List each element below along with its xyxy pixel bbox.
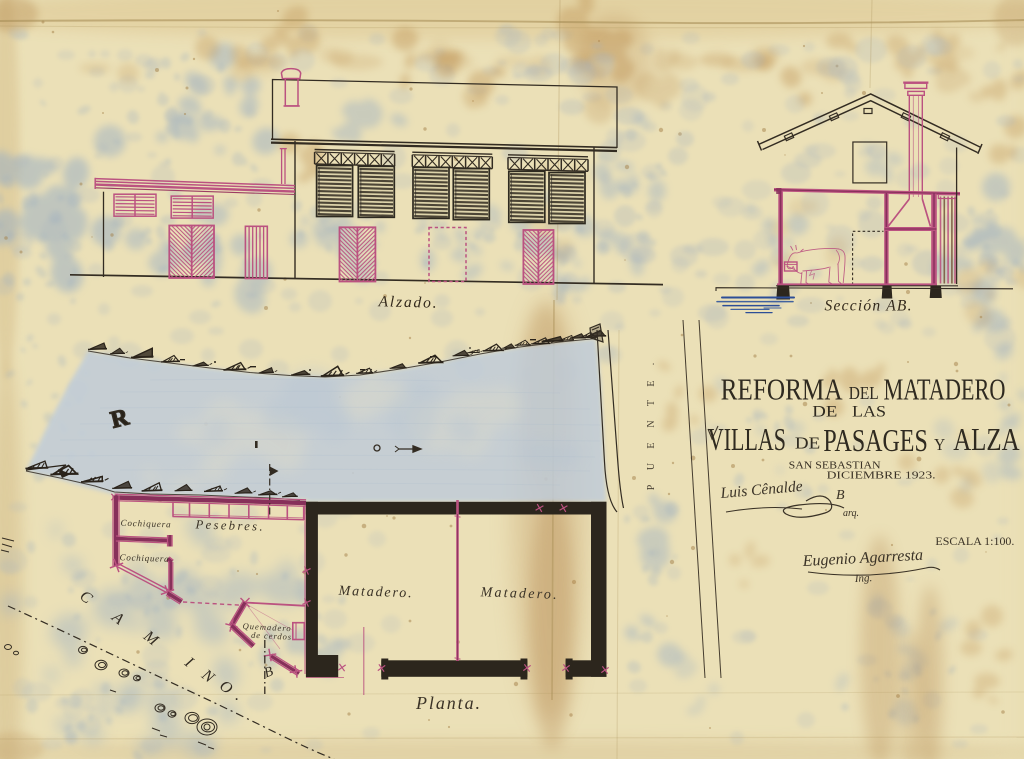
svg-text:.: . bbox=[646, 363, 657, 366]
svg-text:ESCALA 1:100.: ESCALA 1:100. bbox=[935, 536, 1014, 548]
svg-text:P: P bbox=[646, 484, 657, 490]
svg-text:DICIEMBRE 1923.: DICIEMBRE 1923. bbox=[827, 470, 936, 482]
svg-text:arq.: arq. bbox=[843, 508, 859, 519]
svg-text:REFORMA: REFORMA bbox=[721, 372, 843, 407]
svg-text:Sección AB.: Sección AB. bbox=[825, 298, 912, 315]
svg-text:LAS: LAS bbox=[852, 404, 886, 421]
svg-text:PASAGES: PASAGES bbox=[823, 422, 927, 458]
svg-text:ALZA: ALZA bbox=[953, 421, 1019, 457]
svg-text:DE: DE bbox=[812, 404, 837, 421]
svg-text:de cerdos: de cerdos bbox=[251, 630, 292, 642]
svg-text:Ing.: Ing. bbox=[854, 572, 873, 585]
svg-text:Alzado.: Alzado. bbox=[377, 293, 436, 312]
svg-text:B: B bbox=[836, 488, 845, 503]
svg-text:MATADERO: MATADERO bbox=[884, 372, 1006, 407]
svg-text:Cochiquera: Cochiquera bbox=[119, 552, 169, 564]
svg-text:U: U bbox=[646, 462, 657, 470]
svg-text:DEL: DEL bbox=[849, 383, 879, 403]
svg-text:DE: DE bbox=[795, 434, 820, 453]
svg-text:.: . bbox=[235, 687, 239, 704]
svg-text:E: E bbox=[646, 442, 657, 448]
svg-text:Cochiquera: Cochiquera bbox=[120, 518, 171, 530]
svg-text:Y: Y bbox=[934, 435, 945, 454]
svg-text:N: N bbox=[646, 420, 657, 427]
svg-text:E: E bbox=[646, 380, 657, 386]
svg-text:T: T bbox=[646, 400, 657, 406]
svg-text:VILLAS: VILLAS bbox=[708, 421, 786, 457]
svg-text:Planta.: Planta. bbox=[415, 693, 480, 713]
